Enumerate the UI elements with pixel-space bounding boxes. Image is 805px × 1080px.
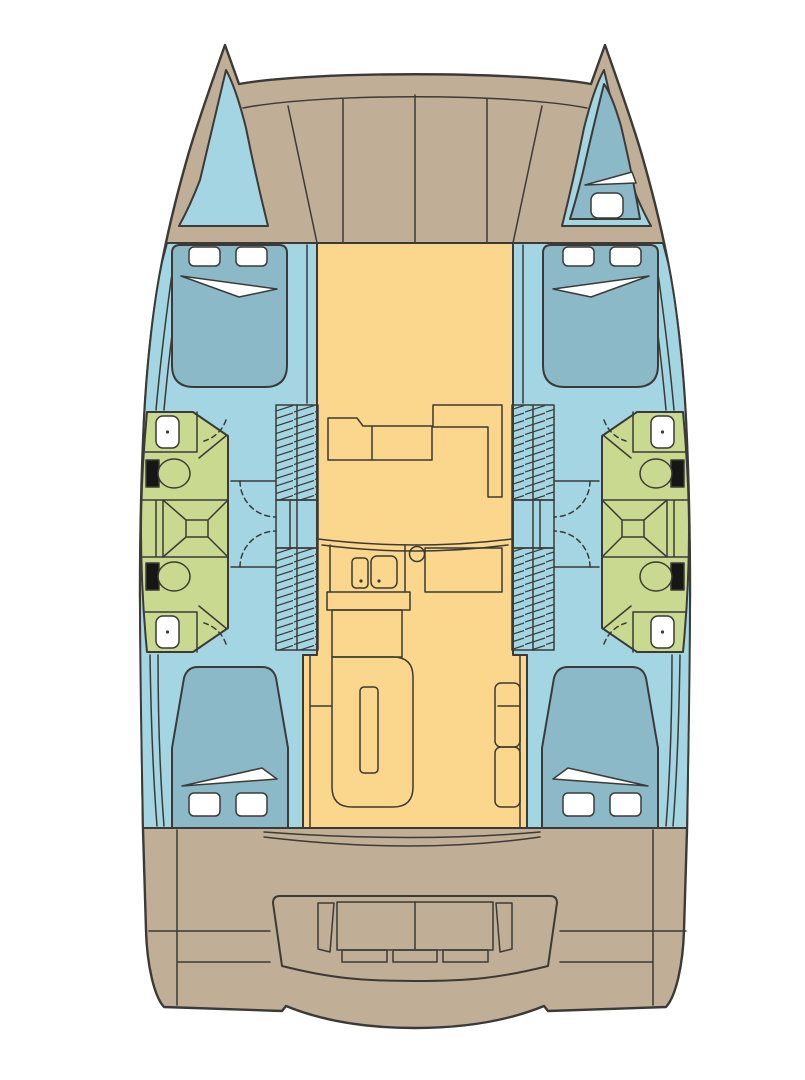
plan-root xyxy=(140,45,690,1028)
pillow xyxy=(610,247,641,266)
pillow xyxy=(563,793,594,816)
pillow xyxy=(610,793,641,816)
toilet-tank xyxy=(146,460,159,487)
toilet-bowl xyxy=(158,562,190,591)
pillow xyxy=(236,247,267,266)
toilet-bowl xyxy=(640,459,672,488)
starboard-heads-floor xyxy=(602,412,689,652)
drain-dot xyxy=(166,630,169,633)
floor-plan xyxy=(0,0,805,1080)
toilet-bowl xyxy=(640,562,672,591)
toilet-tank xyxy=(671,460,684,487)
salon-floor xyxy=(303,243,527,828)
drain-dot xyxy=(661,430,664,433)
pillow xyxy=(563,247,594,266)
toilet-bowl xyxy=(158,459,190,488)
pillow xyxy=(189,793,220,816)
starboard-forward-berth xyxy=(543,245,658,387)
catamaran-plan-svg xyxy=(0,0,805,1080)
toilet-tank xyxy=(146,563,159,590)
toilet-tank xyxy=(671,563,684,590)
drain-dot xyxy=(359,579,362,582)
drain-dot xyxy=(377,579,380,582)
pillow xyxy=(236,793,267,816)
drain-dot xyxy=(661,630,664,633)
port-forward-berth xyxy=(172,245,287,387)
drain-dot xyxy=(166,430,169,433)
bow-berth-pillow xyxy=(591,193,623,218)
pillow xyxy=(189,247,220,266)
port-heads-floor xyxy=(141,412,228,652)
